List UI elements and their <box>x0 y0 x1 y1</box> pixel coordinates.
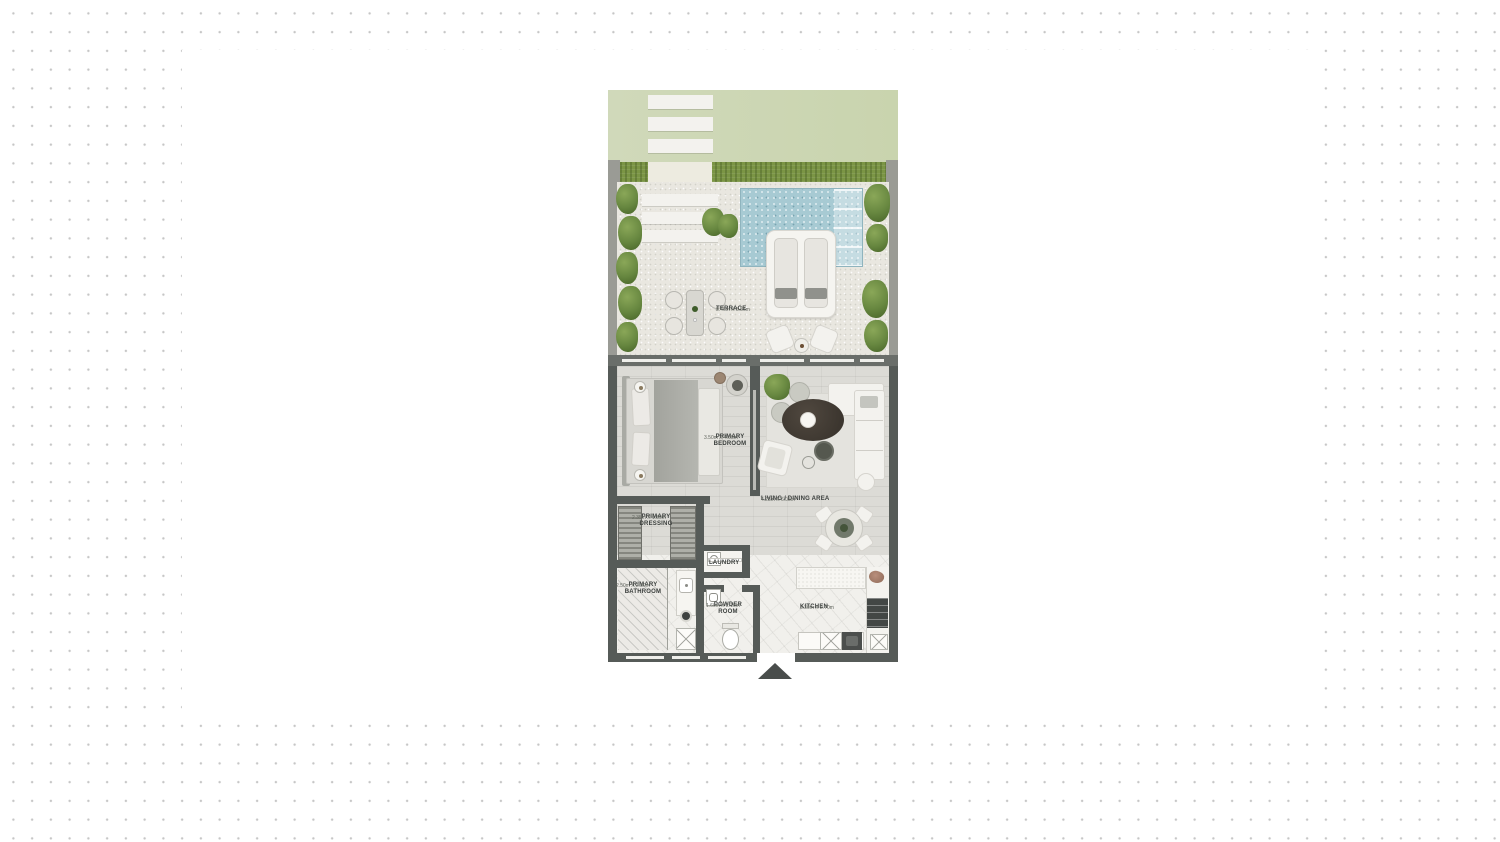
terrace-dims: 8.46m X 5.56m <box>716 307 750 313</box>
side-table-dot <box>800 344 804 348</box>
wall-bathroom-top <box>617 560 704 568</box>
lounger-pillow <box>805 288 827 299</box>
bed-foot-bench <box>698 388 720 476</box>
sofa-cushion-line <box>856 420 883 421</box>
wall-dressing-right <box>696 504 704 560</box>
shrub <box>618 216 642 250</box>
bed-pillow <box>631 432 651 467</box>
sink-cabinet <box>820 632 842 650</box>
primary-bedroom-dims: 3.50m X 4.05m <box>704 435 738 441</box>
sofa-arm-round <box>857 473 875 491</box>
window-glass <box>722 359 746 362</box>
shower-bench <box>676 628 696 650</box>
shrub <box>616 322 638 352</box>
primary-dressing-dims: 2.35m X 1.80m <box>632 515 666 521</box>
laundry-name: LAUNDRY <box>709 560 740 567</box>
entrance-arrow-icon <box>758 663 792 679</box>
corner-cabinet <box>870 634 888 650</box>
wall-powder-right <box>753 585 760 653</box>
window-glass <box>810 359 854 362</box>
kitchen-dims: 3.30m X 2.70m <box>800 605 834 611</box>
powder-room-dims: 1.60m X 2.10m <box>706 603 740 609</box>
kitchen-island <box>796 567 866 589</box>
floor-plan: TERRACE 8.46m X 5.56m <box>608 90 898 678</box>
terrace-wall-stub-left <box>608 160 620 182</box>
bathroom-toilet <box>680 610 692 622</box>
window-glass <box>760 359 804 362</box>
wall-right <box>889 366 898 653</box>
sofa-cushion-line <box>856 450 883 451</box>
wall-bedroom-bottom <box>617 496 710 504</box>
terrace-wall-stub-right <box>886 160 898 182</box>
shrub <box>866 224 888 252</box>
bed-duvet <box>654 380 698 482</box>
shrub <box>862 280 888 318</box>
lamp-dot <box>639 386 643 390</box>
window-glass <box>626 656 664 659</box>
sofa-throw <box>860 396 878 408</box>
shrub <box>864 320 888 352</box>
wall-laundry-bottom <box>704 572 748 578</box>
dark-pouf <box>814 441 834 461</box>
window-glass <box>708 656 746 659</box>
powder-sink-basin <box>709 593 718 602</box>
pool-steps <box>834 189 862 266</box>
primary-bathroom-dims: 2.50m X 2.30m <box>616 583 650 589</box>
window-glass <box>860 359 884 362</box>
appliance-stack <box>867 598 888 628</box>
lounger-pillow <box>775 288 797 299</box>
shrub <box>618 286 642 320</box>
wall-bathroom-right <box>696 568 704 653</box>
terrace-step <box>642 194 718 206</box>
laundry-label: LAUNDRY <box>708 558 742 562</box>
outdoor-chair <box>665 317 683 335</box>
living-dining-dims: 4.23m X 6.05m <box>761 497 795 503</box>
lamp-dot <box>639 474 643 478</box>
window-glass <box>622 359 666 362</box>
bed-pillow <box>631 388 651 427</box>
armchair-cushion <box>732 380 743 391</box>
wall-left <box>608 366 617 653</box>
poolside-planter <box>718 214 738 238</box>
garden-step <box>648 139 713 153</box>
bedroom-side-table <box>714 372 726 384</box>
indoor-plant <box>764 374 790 400</box>
hedge-path-gap <box>648 162 712 182</box>
shrub <box>864 184 890 222</box>
table-plant <box>692 306 698 312</box>
table-dish <box>693 318 697 322</box>
shrub <box>616 184 638 214</box>
outdoor-table <box>686 290 704 336</box>
outdoor-chair <box>665 291 683 309</box>
living-side-table <box>802 456 815 469</box>
bathroom-faucet <box>685 584 688 587</box>
outdoor-chair <box>708 317 726 335</box>
shrub <box>616 252 638 284</box>
wall-bottom-right <box>795 653 898 662</box>
window-glass <box>672 656 700 659</box>
shower-area <box>618 568 668 650</box>
dotted-canvas-background: TERRACE 8.46m X 5.56m <box>0 0 1500 842</box>
garden-step <box>648 95 713 109</box>
window-glass <box>672 359 716 362</box>
dining-centerpiece <box>840 524 848 532</box>
powder-toilet <box>722 629 739 650</box>
garden-step <box>648 117 713 131</box>
terrace-wall-right <box>889 182 898 355</box>
stove-inner <box>846 636 858 646</box>
coffee-table-tray <box>800 412 816 428</box>
